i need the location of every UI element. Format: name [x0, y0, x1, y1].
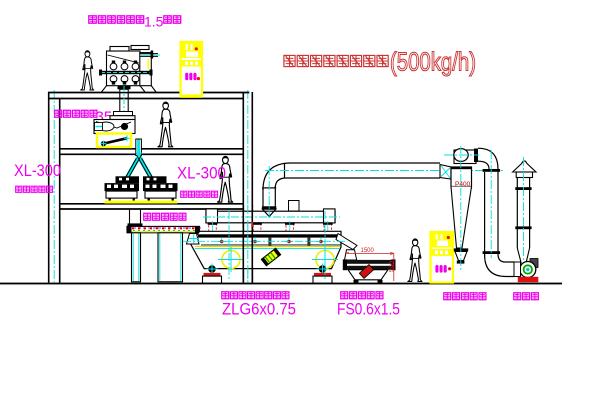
- svg-text:1.5: 1.5: [144, 14, 164, 30]
- svg-text:ZLG6x0.75: ZLG6x0.75: [222, 300, 296, 319]
- svg-text:1500: 1500: [361, 248, 375, 254]
- svg-text:XL-300: XL-300: [14, 162, 61, 180]
- svg-text:XL-300: XL-300: [177, 165, 226, 183]
- svg-text:540: 540: [389, 261, 396, 272]
- svg-text:(500kg/h): (500kg/h): [390, 47, 476, 77]
- svg-text:FS0.6x1.5: FS0.6x1.5: [337, 300, 400, 319]
